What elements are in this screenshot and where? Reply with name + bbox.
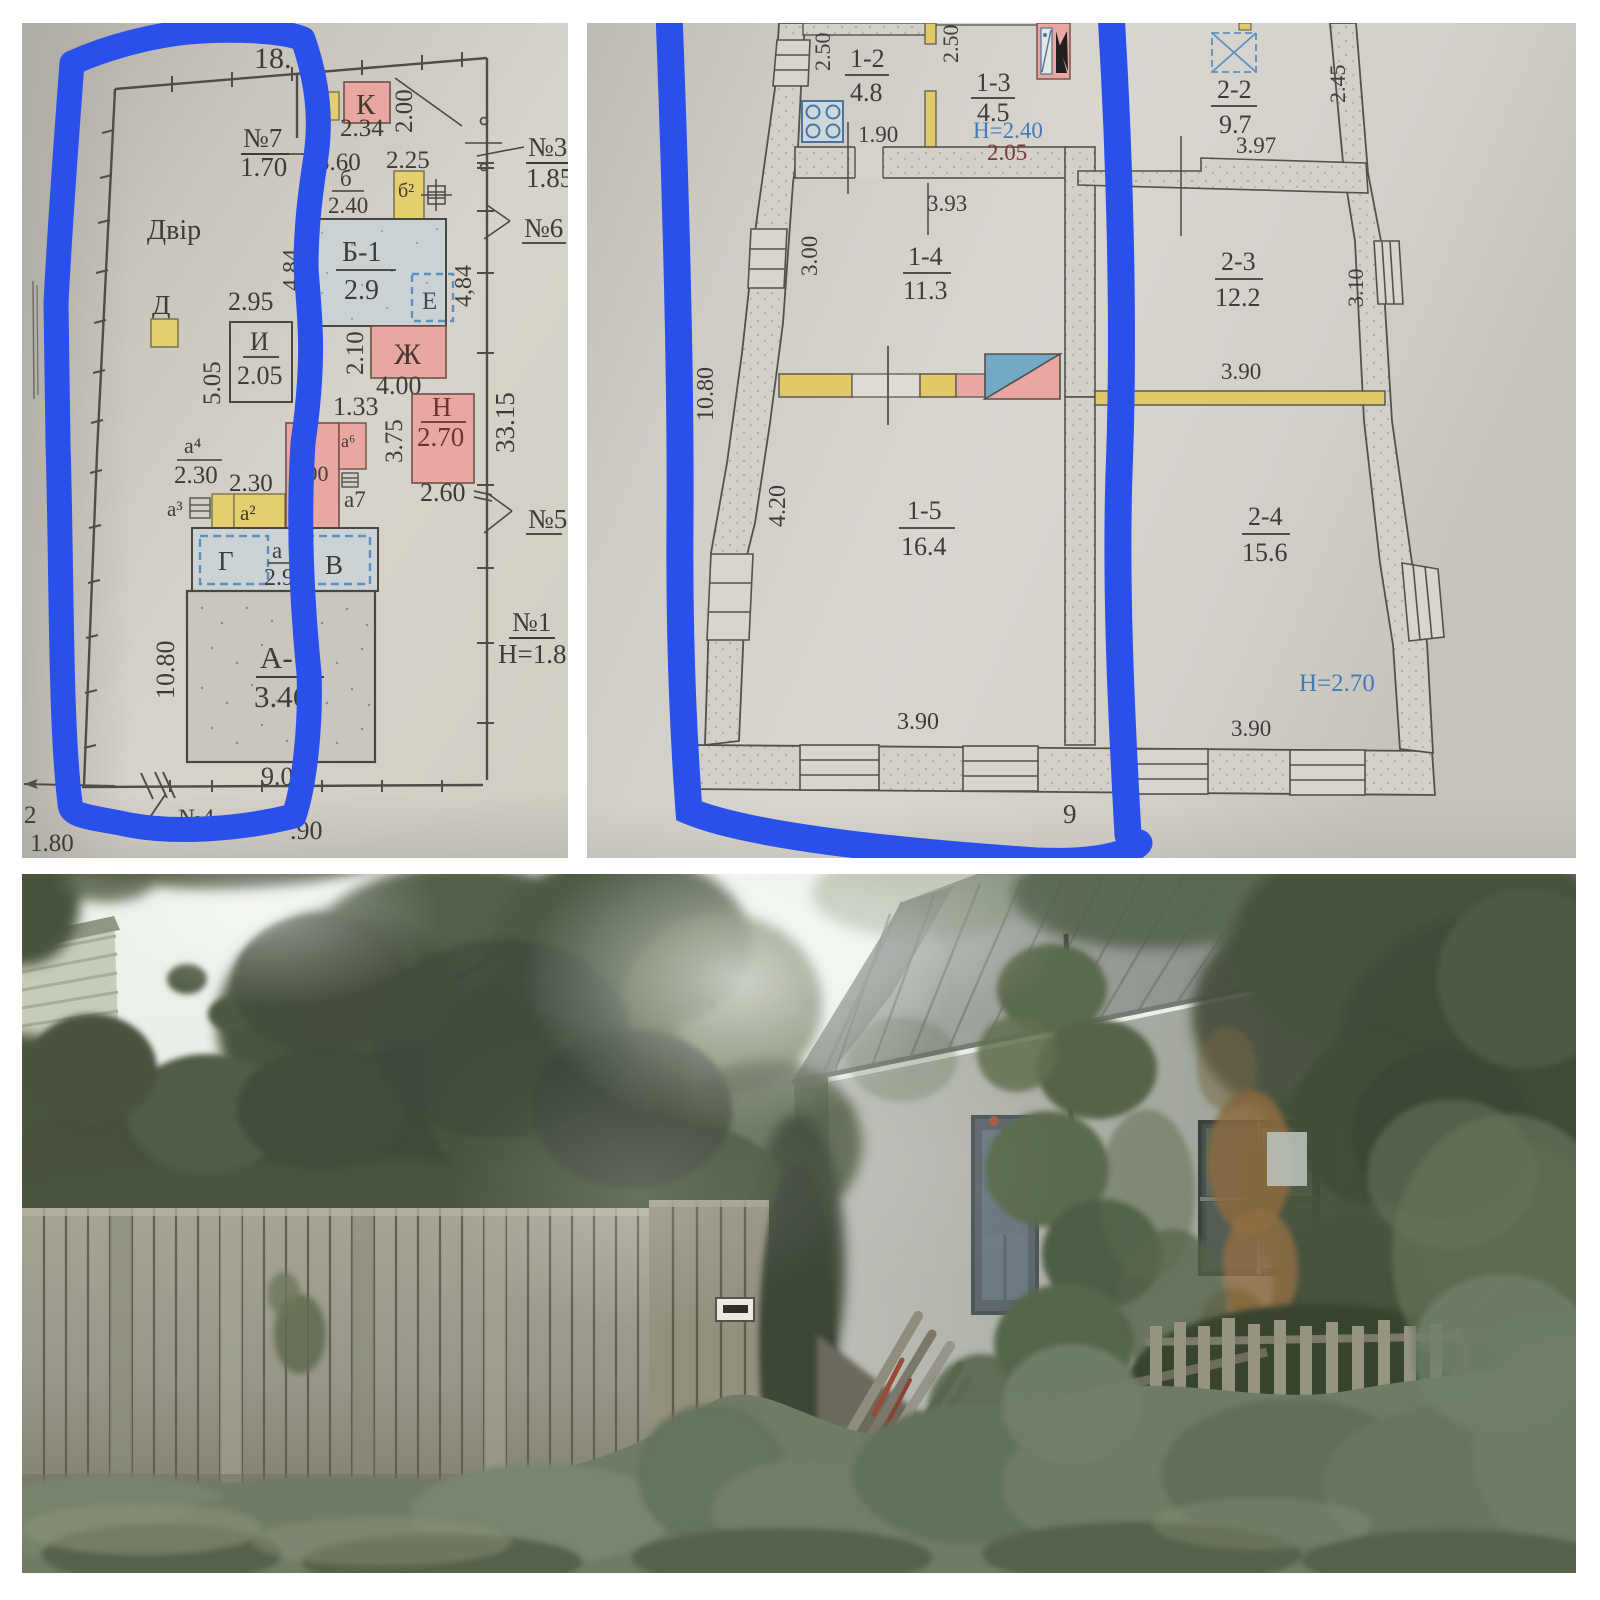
svg-text:а⁴: а⁴ bbox=[184, 433, 202, 458]
svg-text:а: а bbox=[272, 538, 282, 563]
svg-text:2-2: 2-2 bbox=[1217, 75, 1252, 104]
svg-text:б²: б² bbox=[398, 180, 414, 202]
svg-text:а²: а² bbox=[240, 501, 256, 525]
svg-text:1-5: 1-5 bbox=[907, 496, 942, 525]
svg-text:2.50: 2.50 bbox=[810, 33, 835, 72]
svg-text:10.80: 10.80 bbox=[693, 367, 719, 421]
svg-text:9: 9 bbox=[1063, 799, 1077, 829]
svg-text:№3: №3 bbox=[528, 132, 567, 162]
svg-text:1.85: 1.85 bbox=[526, 163, 568, 193]
svg-text:2.05: 2.05 bbox=[237, 361, 283, 390]
svg-text:Н=2.70: Н=2.70 bbox=[1299, 670, 1375, 697]
svg-text:Б-1: Б-1 bbox=[342, 237, 381, 268]
svg-text:а7: а7 bbox=[344, 487, 366, 512]
svg-text:Г: Г bbox=[218, 546, 234, 576]
svg-text:4.20: 4.20 bbox=[765, 485, 791, 527]
svg-text:2.25: 2.25 bbox=[386, 147, 430, 174]
svg-text:3.93: 3.93 bbox=[927, 191, 967, 216]
svg-text:1.33: 1.33 bbox=[333, 392, 379, 421]
svg-text:№5: №5 bbox=[528, 504, 567, 534]
svg-text:11.3: 11.3 bbox=[903, 276, 948, 305]
svg-text:3.90: 3.90 bbox=[1221, 359, 1261, 384]
svg-text:2.40: 2.40 bbox=[328, 193, 368, 218]
svg-text:2-3: 2-3 bbox=[1221, 247, 1256, 276]
svg-text:№1: №1 bbox=[512, 607, 551, 637]
svg-text:А-: А- bbox=[260, 640, 293, 675]
svg-text:2: 2 bbox=[24, 802, 37, 829]
svg-text:И: И bbox=[250, 327, 269, 356]
svg-text:№6: №6 bbox=[524, 213, 563, 243]
svg-text:2.30: 2.30 bbox=[174, 462, 218, 489]
svg-text:2.9: 2.9 bbox=[344, 275, 379, 306]
svg-text:4.8: 4.8 bbox=[850, 78, 883, 107]
svg-text:33.15: 33.15 bbox=[490, 392, 520, 453]
svg-text:3.10: 3.10 bbox=[1343, 269, 1368, 308]
svg-text:3.90: 3.90 bbox=[897, 709, 939, 735]
svg-text:2.70: 2.70 bbox=[417, 422, 464, 452]
svg-text:1-4: 1-4 bbox=[908, 242, 943, 271]
svg-text:3.97: 3.97 bbox=[1236, 133, 1276, 158]
svg-text:2.45: 2.45 bbox=[1325, 65, 1350, 104]
svg-text:1-3: 1-3 bbox=[976, 68, 1011, 97]
svg-text:15.6: 15.6 bbox=[1242, 538, 1288, 567]
svg-text:4,84: 4,84 bbox=[451, 265, 477, 307]
svg-text:2.60: 2.60 bbox=[420, 478, 466, 507]
svg-text:2.10: 2.10 bbox=[342, 331, 369, 375]
svg-text:16.4: 16.4 bbox=[901, 532, 947, 561]
svg-text:1.70: 1.70 bbox=[240, 152, 287, 182]
svg-text:Д: Д bbox=[152, 290, 170, 320]
svg-text:1.90: 1.90 bbox=[858, 122, 898, 147]
svg-text:3.00: 3.00 bbox=[797, 236, 822, 276]
svg-text:2-4: 2-4 bbox=[1248, 502, 1283, 531]
svg-text:10.80: 10.80 bbox=[151, 641, 180, 700]
svg-text:5.05: 5.05 bbox=[199, 361, 226, 405]
svg-text:2.30: 2.30 bbox=[229, 470, 273, 497]
svg-text:1-2: 1-2 bbox=[850, 44, 885, 73]
svg-text:В: В bbox=[325, 550, 343, 580]
svg-text:Н=1.8: Н=1.8 bbox=[498, 639, 566, 669]
svg-text:Н: Н bbox=[432, 392, 452, 422]
svg-text:1.80: 1.80 bbox=[30, 830, 74, 857]
svg-text:2.95: 2.95 bbox=[228, 287, 274, 316]
svg-text:3.75: 3.75 bbox=[381, 419, 408, 463]
svg-text:2.05: 2.05 bbox=[987, 140, 1027, 165]
svg-text:Двір: Двір bbox=[147, 215, 201, 246]
svg-text:б: б bbox=[340, 166, 352, 191]
svg-text:2.50: 2.50 bbox=[938, 25, 963, 64]
svg-text:2.34: 2.34 bbox=[340, 115, 384, 142]
svg-text:а³: а³ bbox=[167, 497, 183, 521]
svg-text:№7: №7 bbox=[243, 123, 282, 153]
svg-text:12.2: 12.2 bbox=[1215, 283, 1261, 312]
svg-text:а⁶: а⁶ bbox=[341, 431, 355, 451]
svg-text:2.00: 2.00 bbox=[391, 89, 418, 133]
svg-text:Е: Е bbox=[422, 288, 437, 315]
svg-text:Ж: Ж bbox=[394, 338, 421, 371]
svg-text:3.90: 3.90 bbox=[1231, 716, 1271, 741]
